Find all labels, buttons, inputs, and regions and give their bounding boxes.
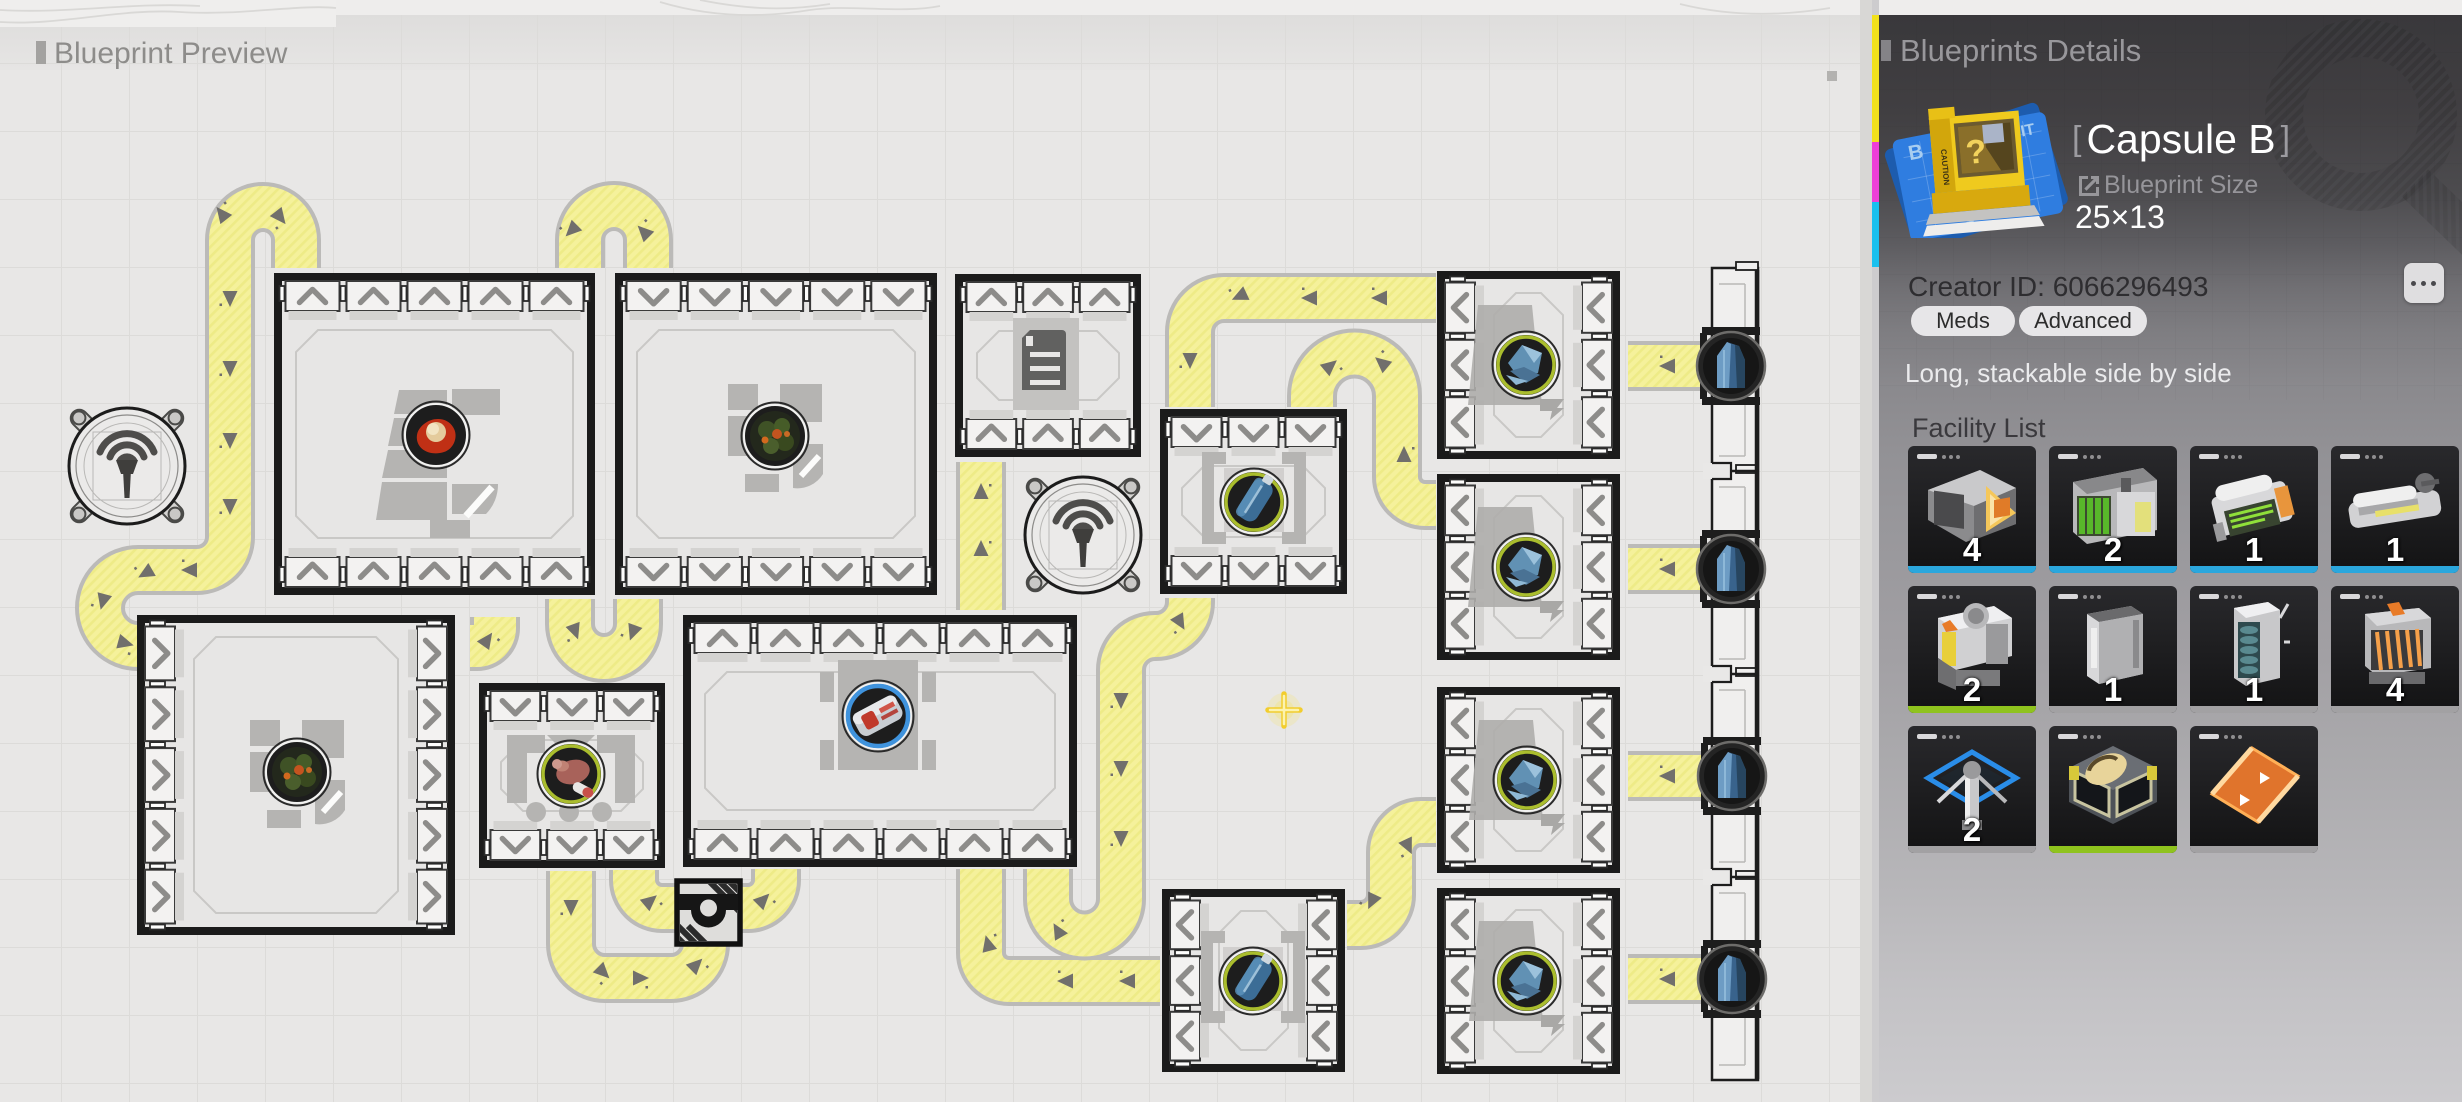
svg-text:?: ?: [1964, 132, 1988, 172]
